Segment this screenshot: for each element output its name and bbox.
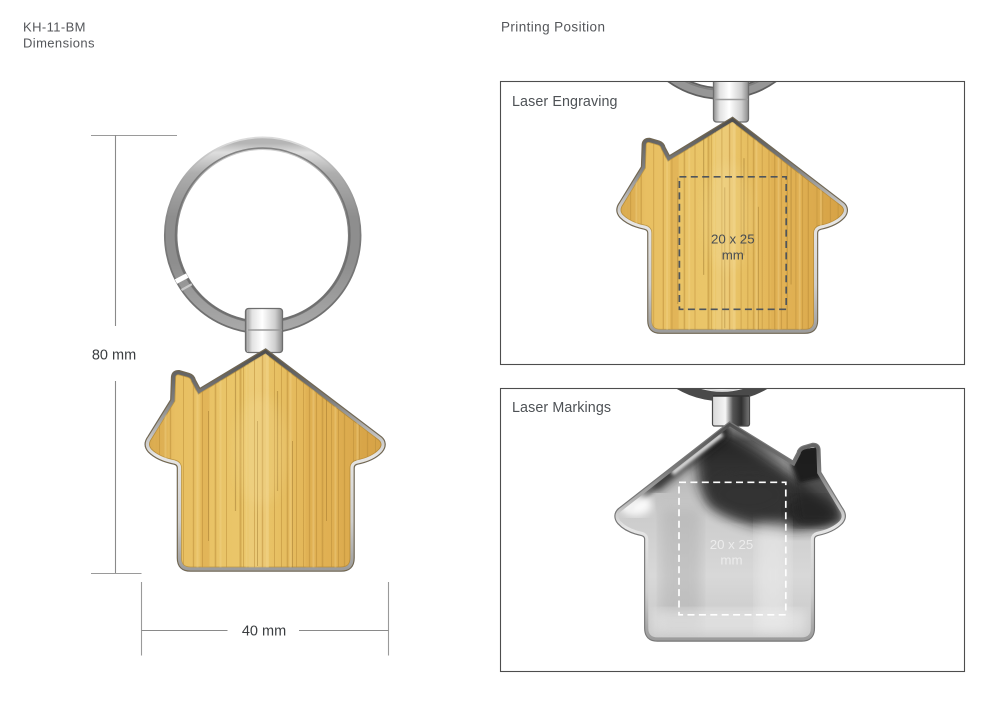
- svg-text:KH-11-BM: KH-11-BM: [23, 20, 86, 35]
- svg-text:mm: mm: [720, 553, 742, 568]
- svg-text:80 mm: 80 mm: [92, 348, 136, 364]
- svg-text:Laser Markings: Laser Markings: [512, 400, 611, 416]
- svg-text:20 x 25: 20 x 25: [710, 537, 754, 552]
- svg-text:Laser Engraving: Laser Engraving: [512, 94, 618, 110]
- svg-text:20 x 25: 20 x 25: [711, 231, 755, 246]
- svg-text:Dimensions: Dimensions: [23, 36, 95, 51]
- svg-text:mm: mm: [722, 247, 744, 262]
- svg-text:Printing Position: Printing Position: [501, 20, 605, 35]
- svg-text:40 mm: 40 mm: [242, 624, 286, 640]
